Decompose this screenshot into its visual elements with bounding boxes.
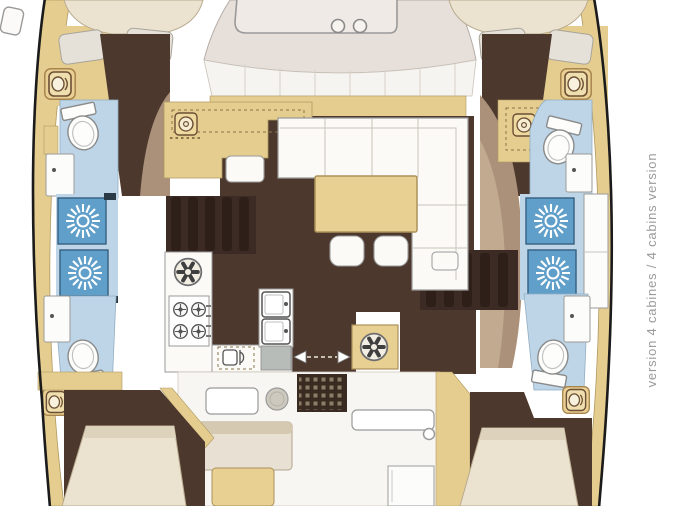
vent-fan-icon (361, 334, 388, 361)
berth-head-band (84, 426, 176, 438)
cockpit-mat-dots (299, 376, 345, 410)
oven-door (223, 350, 237, 365)
cockpit-door-panel (352, 410, 434, 430)
deck-hatch-icon (561, 69, 591, 99)
stbd-head-cabinet (584, 194, 608, 308)
bench-cushion (212, 468, 274, 506)
deck-hatch-icon (45, 69, 75, 99)
bow-cockpit-outline (235, 0, 397, 33)
version-caption: version 4 cabines / 4 cabins version (644, 153, 659, 388)
vent-fan-icon (175, 259, 202, 286)
bow-cupholder-icon (354, 20, 367, 33)
aft-bulkhead (38, 372, 122, 390)
sink-icon (44, 296, 70, 342)
floorplan-svg: version 4 cabines / 4 cabins version (0, 0, 675, 506)
faucet-dot (52, 168, 56, 172)
galley-drainer (261, 346, 291, 370)
stove-burner-icon (192, 303, 206, 317)
berth-head-band (480, 428, 566, 440)
stool (330, 236, 364, 266)
faucet-dot (50, 314, 54, 318)
faucet-dot (570, 314, 574, 318)
sofa-side-stool (432, 252, 458, 270)
stool (374, 236, 408, 266)
sink-icon (564, 296, 590, 342)
faucet-dot (572, 168, 576, 172)
sink-icon (566, 154, 592, 192)
stove-burner-icon (174, 325, 188, 339)
bow-cupholder-icon (332, 20, 345, 33)
cockpit-sink-icon (266, 388, 288, 410)
nav-stool (226, 156, 264, 182)
shower-door-post (104, 193, 116, 200)
cockpit-bench-back (198, 422, 292, 434)
deck-hatch-icon (563, 387, 590, 414)
vanity-counter-top-block (44, 126, 58, 154)
door-handle-icon (424, 429, 435, 440)
stove-burner-icon (192, 325, 206, 339)
cockpit-cabinet (206, 388, 258, 414)
bow-cleat-step (0, 6, 24, 36)
cockpit-fridge (388, 466, 434, 506)
port-hull-stairs (166, 196, 256, 254)
sink-icon (46, 154, 74, 196)
catamaran-floorplan: version 4 cabines / 4 cabins version (0, 0, 675, 506)
pillow (546, 29, 594, 65)
nav-dial-icon (175, 113, 197, 135)
stove-burner-icon (174, 303, 188, 317)
cabin-wall (436, 372, 470, 506)
saloon-table (315, 176, 417, 232)
pillow (58, 29, 106, 65)
cockpit (178, 372, 440, 506)
stove-top (169, 296, 209, 346)
